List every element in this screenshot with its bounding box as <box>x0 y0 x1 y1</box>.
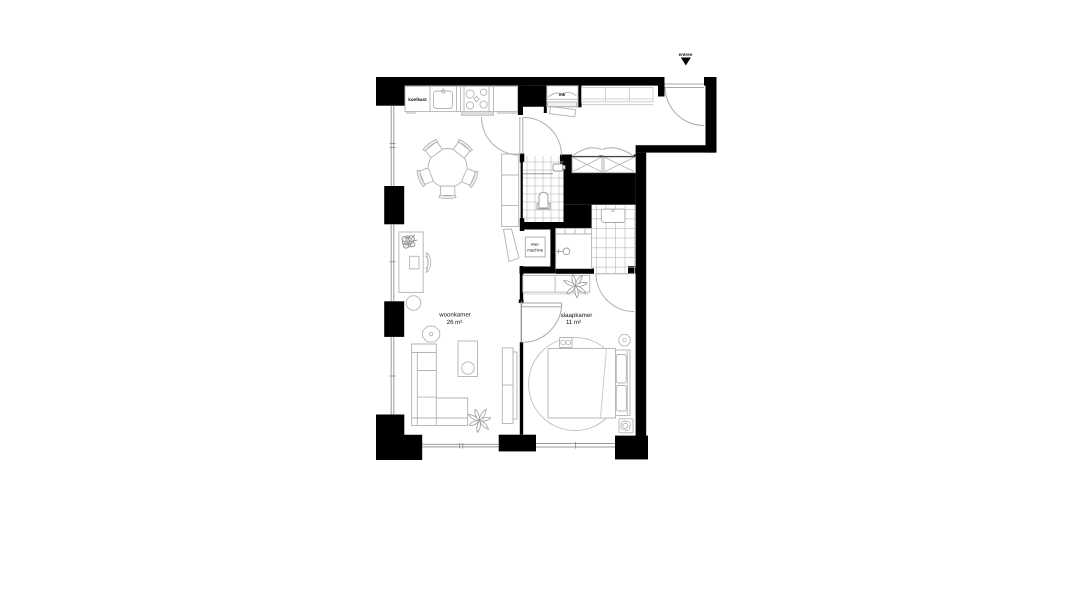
svg-text:machine: machine <box>527 248 543 253</box>
svg-text:koelkast: koelkast <box>408 97 427 102</box>
svg-text:woonkamer: woonkamer <box>438 312 471 319</box>
svg-text:11 m²: 11 m² <box>566 319 581 326</box>
svg-text:26 m²: 26 m² <box>447 319 463 326</box>
svg-text:mk: mk <box>559 92 566 97</box>
svg-text:slaapkamer: slaapkamer <box>561 312 593 319</box>
svg-text:entree: entree <box>679 52 693 57</box>
svg-text:was-: was- <box>531 242 540 247</box>
